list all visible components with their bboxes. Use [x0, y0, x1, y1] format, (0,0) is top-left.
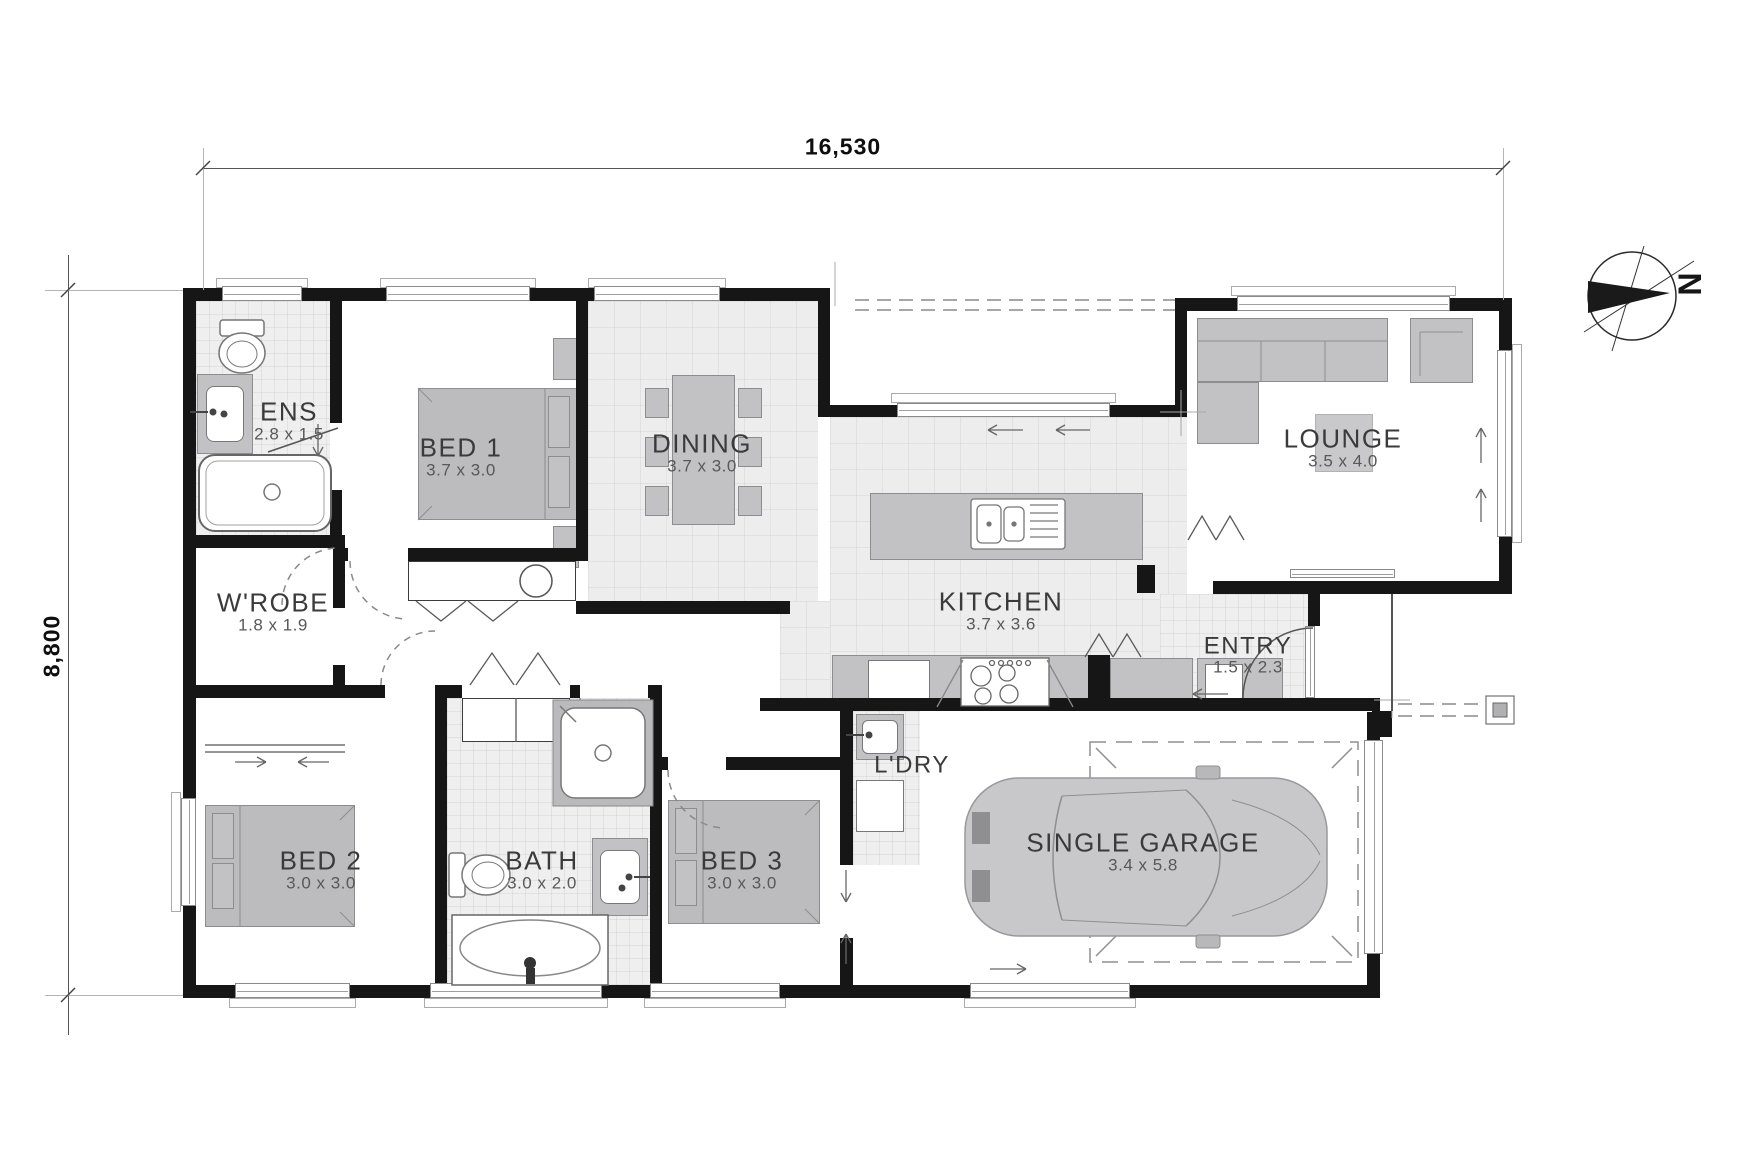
bed1-pillow	[548, 396, 570, 448]
wall-segment	[1499, 298, 1512, 350]
wall-segment	[1367, 954, 1380, 998]
window	[430, 983, 602, 998]
wall-segment	[435, 685, 462, 698]
dining-chair	[738, 486, 762, 516]
washing-machine	[856, 780, 904, 832]
dim-width-label: 16,530	[805, 134, 881, 161]
bath-basin	[600, 850, 640, 904]
room-label-kitchen: KITCHEN 3.7 x 3.6	[939, 588, 1064, 633]
window	[650, 983, 780, 998]
kitchen-walkway-floor	[780, 601, 830, 698]
room-label-dining: DINING 3.7 x 3.0	[652, 430, 752, 475]
wall-segment	[1175, 298, 1237, 311]
compass-north-label: N	[1671, 272, 1708, 295]
dim-line-left	[68, 255, 69, 1035]
wall-segment	[342, 548, 348, 561]
garage-door	[1364, 740, 1383, 954]
room-label-garage: SINGLE GARAGE 3.4 x 5.8	[1026, 829, 1259, 874]
wall-segment	[780, 985, 970, 998]
wall-segment	[330, 301, 342, 423]
dim-extension	[1503, 148, 1504, 300]
bed2-side-window	[181, 798, 196, 906]
window-sill	[229, 998, 356, 1008]
wall-segment	[726, 757, 840, 770]
wall-segment	[662, 757, 668, 770]
room-name: SINGLE GARAGE	[1026, 829, 1259, 856]
room-label-lounge: LOUNGE 3.5 x 4.0	[1284, 425, 1403, 470]
room-dims: 2.8 x 1.5	[254, 426, 324, 444]
room-name: L'DRY	[874, 752, 950, 777]
wall-segment	[648, 685, 662, 698]
hallway-hwc-cupboard	[408, 561, 576, 601]
room-dims: 3.7 x 3.0	[652, 458, 752, 476]
armchair	[1410, 318, 1473, 383]
room-name: W'ROBE	[217, 589, 329, 616]
window	[594, 286, 720, 301]
wall-segment	[530, 288, 594, 301]
room-dims: 3.7 x 3.0	[420, 462, 503, 480]
lounge-window	[1237, 296, 1450, 311]
ens-basin	[206, 386, 244, 442]
dim-line-top	[203, 168, 1503, 169]
window	[235, 983, 350, 998]
wall-segment	[570, 685, 580, 698]
wall-segment	[1308, 594, 1320, 626]
wall-segment	[302, 288, 386, 301]
room-label-entry: ENTRY 1.5 x 2.3	[1204, 633, 1292, 676]
bed3-pillow	[675, 860, 697, 906]
room-dims: 3.0 x 3.0	[280, 875, 363, 893]
room-name: BED 2	[280, 847, 363, 874]
bed1-pillow	[548, 456, 570, 508]
room-label-ens: ENS 2.8 x 1.5	[254, 398, 324, 443]
dining-chair	[738, 388, 762, 418]
room-dims: 3.0 x 2.0	[505, 875, 578, 893]
room-name: LOUNGE	[1284, 425, 1403, 452]
garage-window	[970, 983, 1130, 998]
wall-segment	[840, 938, 853, 985]
dim-extension	[45, 995, 183, 996]
room-name: ENTRY	[1204, 633, 1292, 658]
wall-segment	[830, 405, 897, 417]
wall-segment	[720, 288, 830, 301]
dim-extension	[45, 290, 183, 291]
wall-segment	[183, 685, 385, 698]
wall-segment	[435, 698, 447, 985]
wall-segment	[818, 300, 830, 417]
kitchen-window	[897, 403, 1110, 417]
wall-segment	[650, 698, 662, 985]
wall-segment	[576, 301, 588, 548]
room-label-ldry: L'DRY	[874, 752, 950, 777]
room-label-wrobe: W'ROBE 1.8 x 1.9	[217, 589, 329, 634]
room-name: BED 3	[701, 847, 784, 874]
room-label-bed2: BED 2 3.0 x 3.0	[280, 847, 363, 892]
room-dims: 3.5 x 4.0	[1284, 453, 1403, 471]
window-sill	[891, 393, 1116, 403]
room-dims: 1.8 x 1.9	[217, 617, 329, 635]
wall-segment	[350, 985, 430, 998]
bed3-pillow	[675, 808, 697, 854]
room-name: DINING	[652, 430, 752, 457]
wall-segment	[1130, 985, 1380, 998]
entry-door-leaf	[1305, 626, 1315, 698]
window-sill	[1512, 344, 1522, 543]
window	[222, 286, 302, 301]
room-label-bed1: BED 1 3.7 x 3.0	[420, 434, 503, 479]
room-label-bath: BATH 3.0 x 2.0	[505, 847, 578, 892]
room-label-bed3: BED 3 3.0 x 3.0	[701, 847, 784, 892]
porch-post	[1372, 711, 1392, 737]
room-dims: 3.0 x 3.0	[701, 875, 784, 893]
room-dims: 3.4 x 5.8	[1026, 857, 1259, 875]
window-sill	[171, 792, 181, 912]
wall-segment	[183, 535, 345, 548]
wall-segment	[1175, 298, 1187, 417]
sofa	[1197, 318, 1388, 382]
lounge-low-window	[1290, 569, 1395, 578]
bed2-pillow	[212, 813, 234, 859]
room-name: KITCHEN	[939, 588, 1064, 615]
wall-segment	[602, 985, 650, 998]
dim-height-label: 8,800	[39, 615, 66, 678]
wall-segment	[840, 711, 853, 865]
laundry-tub-basin	[862, 720, 898, 754]
dim-extension	[203, 148, 204, 290]
window-sill	[644, 998, 786, 1008]
floor-plan-canvas: 16,530 8,800	[0, 0, 1764, 1174]
sofa-chaise	[1197, 382, 1259, 444]
wall-segment	[183, 985, 235, 998]
dining-chair	[645, 388, 669, 418]
bed2-pillow	[212, 863, 234, 909]
kitchen-island	[870, 493, 1143, 560]
room-name: BATH	[505, 847, 578, 874]
window-sill	[424, 998, 608, 1008]
wall-pier	[1137, 565, 1155, 593]
lounge-side-window	[1497, 350, 1512, 537]
north-compass-icon	[1584, 246, 1694, 351]
window-sill	[1231, 286, 1456, 296]
room-dims: 1.5 x 2.3	[1204, 659, 1292, 677]
window	[386, 286, 530, 301]
wall-segment	[408, 548, 588, 561]
wall-segment	[760, 698, 1380, 711]
window-sill	[964, 998, 1136, 1008]
bed2-wardrobe-track	[205, 745, 345, 752]
wall-segment	[1213, 581, 1512, 594]
wall-segment	[576, 601, 790, 614]
wall-pier	[1088, 655, 1110, 711]
room-name: BED 1	[420, 434, 503, 461]
linen-cupboard	[462, 698, 570, 742]
dining-chair	[645, 486, 669, 516]
letterbox-icon	[1486, 696, 1514, 724]
room-dims: 3.7 x 3.6	[939, 616, 1064, 634]
room-name: ENS	[254, 398, 324, 425]
